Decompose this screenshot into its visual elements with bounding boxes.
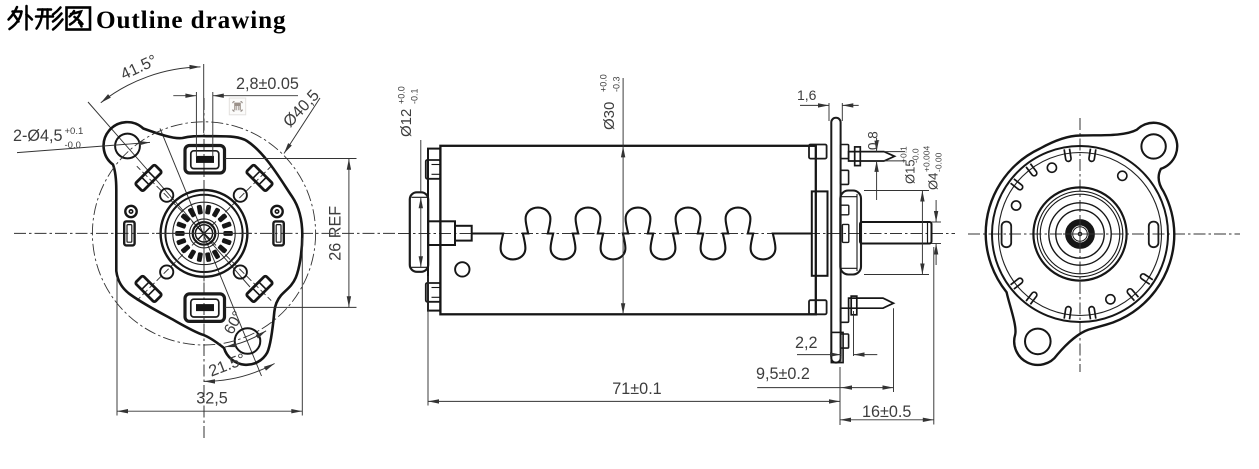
svg-text:2,8±0.05: 2,8±0.05 [236, 75, 299, 93]
svg-text:26 REF: 26 REF [327, 206, 345, 261]
svg-text:-0.3: -0.3 [612, 76, 622, 92]
svg-text:-0.00: -0.00 [934, 152, 944, 172]
svg-text:-0.0: -0.0 [911, 148, 921, 163]
svg-text:Ø4: Ø4 [926, 173, 941, 190]
svg-text:+0.1: +0.1 [65, 126, 84, 137]
svg-text:+0.004: +0.004 [922, 145, 932, 172]
svg-text:2,2: 2,2 [795, 334, 818, 352]
svg-text:-0.0: -0.0 [65, 140, 81, 151]
svg-text:Ø30: Ø30 [601, 102, 618, 130]
svg-text:Ø12: Ø12 [398, 109, 415, 137]
svg-text:Outline drawing: Outline drawing [96, 7, 287, 34]
svg-text:9,5±0.2: 9,5±0.2 [756, 365, 810, 383]
svg-text:+0.0: +0.0 [397, 86, 407, 104]
svg-text:+0.1: +0.1 [899, 146, 909, 163]
svg-text:1,6: 1,6 [797, 87, 817, 103]
svg-text:2-Ø4,5: 2-Ø4,5 [13, 127, 63, 145]
svg-text:-0.1: -0.1 [410, 88, 420, 104]
svg-text:0,8: 0,8 [866, 131, 881, 150]
svg-text:+0.0: +0.0 [599, 74, 609, 92]
svg-text:71±0.1: 71±0.1 [612, 380, 661, 398]
svg-text:16±0.5: 16±0.5 [862, 403, 911, 421]
svg-text:32,5: 32,5 [196, 390, 228, 408]
